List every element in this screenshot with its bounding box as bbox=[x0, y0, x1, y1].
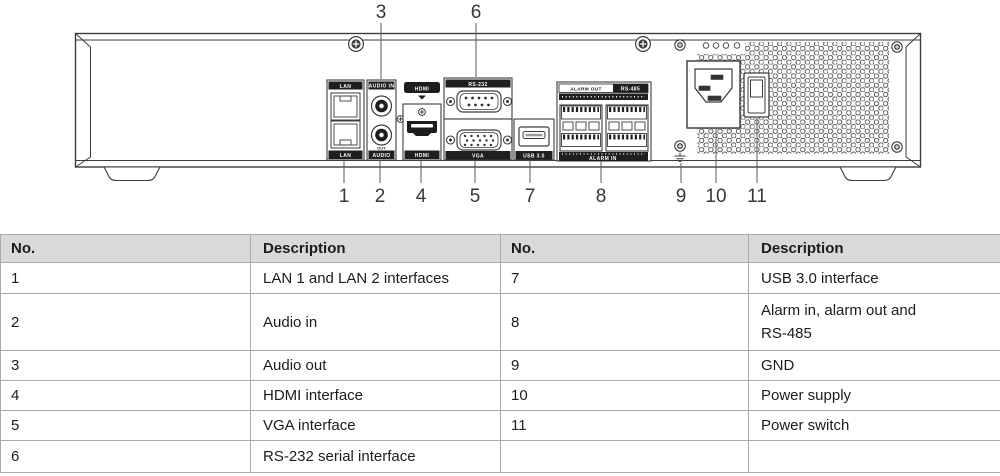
column-header-desc-right: Description bbox=[749, 235, 1000, 263]
cell-desc: USB 3.0 interface bbox=[749, 263, 1000, 294]
callout-number: 3 bbox=[376, 2, 387, 23]
cell-desc: Power switch bbox=[749, 411, 1000, 441]
lan-top-label: LAN bbox=[340, 84, 351, 90]
table-header-row: No. Description No. Description bbox=[1, 235, 1000, 263]
cell-no: 8 bbox=[501, 294, 749, 351]
cell-no: 5 bbox=[1, 411, 251, 441]
table-row: 5 VGA interface 11 Power switch bbox=[1, 411, 1000, 441]
cell-desc: Audio out bbox=[251, 351, 501, 381]
callout-number: 8 bbox=[596, 186, 607, 207]
column-header-desc-left: Description bbox=[251, 235, 501, 263]
cell-no: 11 bbox=[501, 411, 749, 441]
rs232-label: RS-232 bbox=[468, 82, 487, 88]
rca-jack-out bbox=[372, 125, 392, 145]
cell-desc: Audio in bbox=[251, 294, 501, 351]
audio-out-mark: OUT bbox=[377, 145, 386, 150]
callout-number: 2 bbox=[375, 186, 386, 207]
power-inlet bbox=[687, 61, 740, 128]
alarm-terminals: ALARM OUT RS-485 ALARM IN bbox=[557, 82, 651, 162]
cell-desc: RS-232 serial interface bbox=[251, 441, 501, 473]
usb-label: USB 3.0 bbox=[523, 154, 545, 160]
cell-desc: GND bbox=[749, 351, 1000, 381]
description-table: No. Description No. Description 1 LAN 1 … bbox=[0, 234, 1000, 473]
callout-number: 11 bbox=[747, 186, 767, 207]
callout-number: 1 bbox=[339, 186, 350, 207]
callout-number: 7 bbox=[525, 186, 536, 207]
table-row: 1 LAN 1 and LAN 2 interfaces 7 USB 3.0 i… bbox=[1, 263, 1000, 294]
callout-number: 6 bbox=[471, 2, 482, 23]
hdmi-logo: HDMI bbox=[415, 86, 430, 92]
rs232-port: RS-232 bbox=[444, 78, 512, 119]
hdmi-bottom-label: HDMI bbox=[415, 153, 430, 159]
vga-port: VGA bbox=[444, 119, 512, 160]
cell-desc-line1: Alarm in, alarm out and bbox=[761, 299, 990, 322]
cell-desc: Power supply bbox=[749, 381, 1000, 411]
audio-top-label: AUDIO IN bbox=[369, 84, 395, 90]
cell-no: 9 bbox=[501, 351, 749, 381]
audio-bottom-label: AUDIO bbox=[372, 153, 390, 159]
cell-no: 10 bbox=[501, 381, 749, 411]
cell-desc: HDMI interface bbox=[251, 381, 501, 411]
cell-no: 1 bbox=[1, 263, 251, 294]
callout-number: 4 bbox=[416, 186, 427, 207]
column-header-no-left: No. bbox=[1, 235, 251, 263]
table-row: 3 Audio out 9 GND bbox=[1, 351, 1000, 381]
cell-no: 2 bbox=[1, 294, 251, 351]
cell-desc-line2: RS-485 bbox=[761, 322, 990, 345]
lan-bottom-label: LAN bbox=[340, 153, 351, 159]
alarm-out-label: ALARM OUT bbox=[570, 87, 601, 93]
rca-jack-in bbox=[372, 96, 392, 116]
power-switch[interactable] bbox=[744, 73, 769, 117]
callout-number: 9 bbox=[676, 186, 687, 207]
cell-desc: LAN 1 and LAN 2 interfaces bbox=[251, 263, 501, 294]
cell-no bbox=[501, 441, 749, 473]
cell-no: 4 bbox=[1, 381, 251, 411]
rs485-label: RS-485 bbox=[621, 87, 640, 93]
cell-desc: VGA interface bbox=[251, 411, 501, 441]
table-row: 2 Audio in 8 Alarm in, alarm out and RS-… bbox=[1, 294, 1000, 351]
vga-label: VGA bbox=[472, 154, 484, 160]
cell-desc bbox=[749, 441, 1000, 473]
rear-panel-diagram: LAN LAN AUDIO IN OUT AUDIO bbox=[0, 0, 1000, 234]
right-foot bbox=[840, 167, 896, 181]
rear-panel-figure: LAN LAN AUDIO IN OUT AUDIO bbox=[0, 0, 1000, 234]
column-header-no-right: No. bbox=[501, 235, 749, 263]
lan-ports: LAN LAN bbox=[327, 80, 364, 160]
cell-no: 7 bbox=[501, 263, 749, 294]
callout-number: 10 bbox=[705, 186, 726, 207]
cell-desc: Alarm in, alarm out and RS-485 bbox=[749, 294, 1000, 351]
cell-no: 3 bbox=[1, 351, 251, 381]
callout-number: 5 bbox=[470, 186, 481, 207]
usb-port: USB 3.0 bbox=[514, 119, 554, 160]
table-row: 4 HDMI interface 10 Power supply bbox=[1, 381, 1000, 411]
alarm-in-label: ALARM IN bbox=[589, 156, 617, 162]
cell-no: 6 bbox=[1, 441, 251, 473]
left-foot bbox=[104, 167, 160, 181]
table-row: 6 RS-232 serial interface bbox=[1, 441, 1000, 473]
